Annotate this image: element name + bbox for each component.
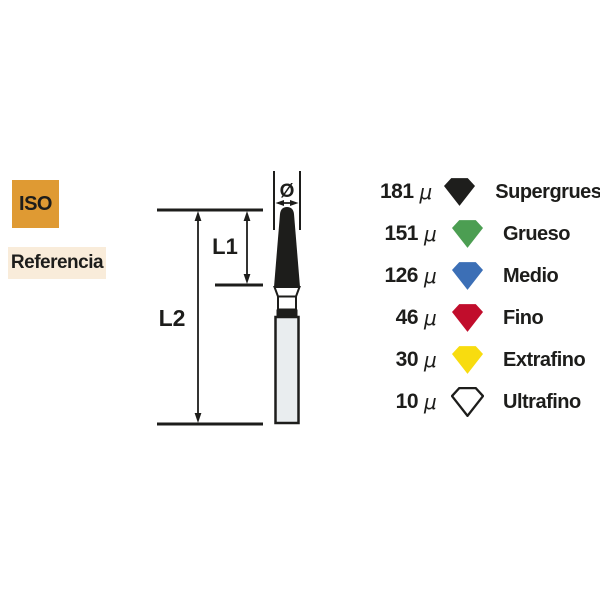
grit-name: Supergrueso [495,181,600,204]
grit-name: Grueso [503,223,570,246]
micron-unit: μ [424,348,440,372]
grit-legend: 181 μ Supergrueso 151 μ Grueso 126 μ Med… [380,171,595,423]
grit-value: 30 [380,348,418,372]
grit-value: 126 [380,264,418,288]
legend-row-grueso: 151 μ Grueso [380,213,595,255]
iso-tag: ISO [12,180,59,228]
diamond-icon-supergrueso [443,177,476,207]
micron-unit: μ [424,306,440,330]
bur-collar [278,297,296,310]
iso-label: ISO [19,193,52,216]
grit-name: Extrafino [503,349,585,372]
bur-head [274,207,300,287]
bur-neck [275,287,300,297]
legend-row-medio: 126 μ Medio [380,255,595,297]
legend-row-supergrueso: 181 μ Supergrueso [380,171,595,213]
referencia-label: Referencia [11,252,103,274]
grit-name: Ultrafino [503,391,581,414]
l2-label: L2 [159,305,186,331]
grit-value: 151 [380,222,418,246]
grit-value: 46 [380,306,418,330]
legend-row-ultrafino: 10 μ Ultrafino [380,381,595,423]
referencia-tag: Referencia [8,247,106,279]
bur-illustration [274,207,300,423]
grit-value: 181 [380,180,414,204]
micron-unit: μ [420,180,433,204]
grit-value: 10 [380,390,418,414]
bur-dimension-diagram: L1 L2 Ø [150,165,340,435]
l2-arrow [195,211,202,423]
legend-row-extrafino: 30 μ Extrafino [380,339,595,381]
l1-arrow [244,211,251,284]
diamond-icon-extrafino [451,345,484,375]
micron-unit: μ [424,390,440,414]
diamond-icon-grueso [451,219,484,249]
bur-shank [276,317,299,423]
grit-name: Fino [503,307,543,330]
diamond-icon-ultrafino [451,387,484,417]
micron-unit: μ [424,222,440,246]
diamond-icon-medio [451,261,484,291]
product-diagram-canvas: ISO Referencia L1 L2 [0,0,600,600]
grit-name: Medio [503,265,558,288]
diameter-symbol: Ø [280,181,295,202]
legend-row-fino: 46 μ Fino [380,297,595,339]
diamond-icon-fino [451,303,484,333]
micron-unit: μ [424,264,440,288]
l1-label: L1 [212,234,238,259]
